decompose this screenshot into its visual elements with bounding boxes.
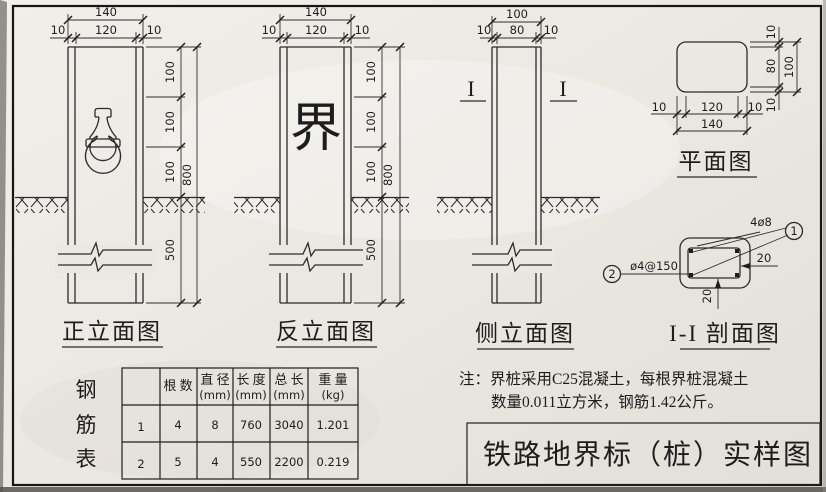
dim-cover-vertical: 20	[700, 289, 714, 304]
row1-weight: 1.201	[317, 418, 350, 432]
dim-front-total-width: 140	[95, 5, 117, 19]
side-ground-hatch-right	[541, 198, 600, 213]
dim-rear-face-width: 120	[305, 23, 327, 37]
table-header-diameter: 直 径	[200, 372, 229, 387]
table-vertical-title-char-3: 表	[76, 447, 97, 471]
section-view-label: I-I 剖面图	[669, 321, 781, 346]
front-break-mask	[55, 245, 157, 273]
drawing-title: 铁路地界标（桩）实样图	[483, 439, 813, 471]
boundary-character: 界	[290, 101, 342, 158]
table-header-diameter-unit: (mm)	[199, 388, 230, 402]
rear-break-mask	[266, 245, 366, 273]
scanned-drawing-page: 140 10 120 10 100 100 100 500 800 正立面图 界…	[0, 0, 826, 492]
row2-diameter: 4	[211, 455, 218, 469]
section-mark-right: I	[559, 76, 566, 101]
table-header-weight-unit: (kg)	[322, 388, 345, 402]
table-header-total-length-unit: (mm)	[273, 388, 304, 402]
dim-plan-depth-face: 80	[764, 59, 778, 74]
dim-plan-width-face: 120	[701, 100, 723, 114]
plan-view-label: 平面图	[679, 149, 754, 174]
dim-plan-left-chamfer: 10	[652, 100, 667, 114]
section-mark-left: I	[467, 76, 474, 101]
dim-side-face-width: 80	[510, 23, 525, 37]
row2-weight: 0.219	[317, 455, 350, 469]
table-header-weight: 重 量	[318, 372, 347, 387]
front-ground-hatch-left	[15, 198, 68, 213]
dim-front-buried-depth: 500	[163, 239, 177, 261]
dim-front-edge-right: 10	[147, 23, 162, 37]
callout-bubble-2-number: 2	[608, 267, 615, 281]
dim-front-seg3: 100	[163, 161, 177, 183]
table-header-length-unit: (mm)	[235, 388, 266, 402]
dim-front-seg1: 100	[163, 61, 177, 83]
scan-edge-bottom	[0, 487, 826, 492]
dim-plan-right-chamfer: 10	[748, 100, 763, 114]
dim-plan-top-chamfer: 10	[764, 25, 778, 40]
side-ground-hatch-left	[437, 198, 492, 213]
row1-no: 1	[137, 420, 144, 434]
dim-rear-edge-right: 10	[355, 23, 370, 37]
dim-plan-depth-total: 100	[782, 56, 796, 78]
callout-bubble-1-number: 1	[790, 224, 797, 238]
note-line-2: 数量0.011立方米，钢筋1.42公斤。	[491, 393, 723, 411]
dim-side-total-width: 100	[506, 7, 528, 21]
rear-ground-hatch-left	[234, 198, 280, 213]
front-elevation-label: 正立面图	[62, 319, 162, 344]
table-header-length: 长 度	[236, 372, 265, 387]
row2-length: 550	[240, 455, 262, 469]
dim-rear-total-height: 800	[381, 164, 395, 186]
row1-total-length: 3040	[274, 418, 303, 432]
dim-front-seg2: 100	[163, 111, 177, 133]
dim-rear-buried-depth: 500	[364, 239, 378, 261]
front-ground-hatch-right	[143, 198, 205, 213]
row1-diameter: 8	[211, 418, 218, 432]
side-elevation-label: 侧立面图	[475, 321, 575, 346]
row1-length: 760	[240, 418, 262, 432]
table-vertical-title-char-2: 筋	[76, 413, 97, 437]
table-vertical-title-char-1: 钢	[76, 378, 97, 402]
dim-rear-seg3: 100	[364, 161, 378, 183]
dim-plan-width-total: 140	[701, 117, 723, 131]
row2-total-length: 2200	[274, 455, 303, 469]
dim-side-edge-left: 10	[477, 23, 492, 37]
dim-rear-total-width: 140	[305, 5, 327, 19]
engineering-drawing: 140 10 120 10 100 100 100 500 800 正立面图 界…	[0, 0, 826, 492]
dim-rear-seg2: 100	[364, 111, 378, 133]
dim-front-face-width: 120	[95, 23, 117, 37]
row1-count: 4	[174, 418, 181, 432]
dim-front-total-height: 800	[180, 164, 194, 186]
row2-no: 2	[137, 457, 144, 471]
main-bars-callout: 4ø8	[750, 215, 772, 229]
dim-side-edge-right: 10	[544, 23, 559, 37]
rear-elevation-label: 反立面图	[276, 319, 376, 344]
note-line-1: 注：界桩采用C25混凝土，每根界桩混凝土	[459, 370, 748, 388]
dim-plan-bottom-chamfer: 10	[764, 98, 778, 113]
table-header-count: 根 数	[163, 378, 192, 393]
stirrup-callout: ø4@150	[630, 259, 678, 273]
dim-front-edge-left: 10	[51, 23, 66, 37]
dim-rear-edge-left: 10	[262, 23, 277, 37]
table-header-total-length: 总 长	[274, 372, 303, 387]
dim-cover-horizontal: 20	[757, 251, 772, 265]
dim-rear-seg1: 100	[364, 61, 378, 83]
row2-count: 5	[174, 455, 181, 469]
